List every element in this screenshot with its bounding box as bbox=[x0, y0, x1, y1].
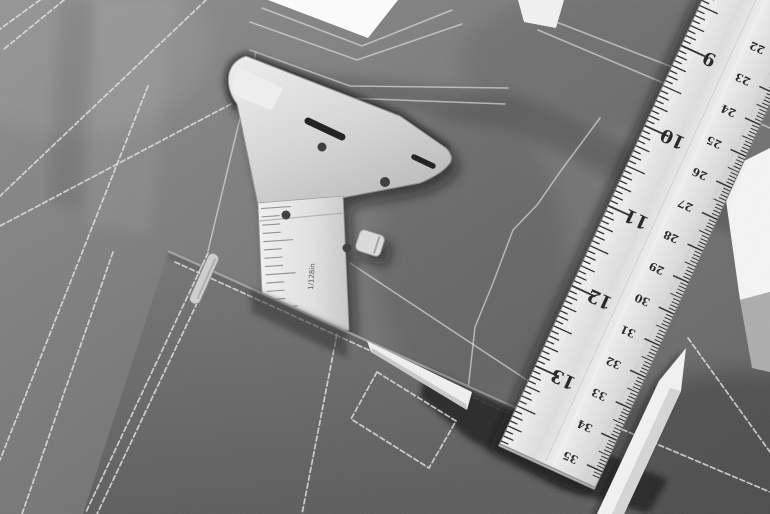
photo-tailor-tools: 1/128in bbox=[0, 0, 770, 514]
photo-grain-overlay bbox=[0, 0, 770, 514]
screenshot-root: 1/128in bbox=[0, 0, 770, 514]
